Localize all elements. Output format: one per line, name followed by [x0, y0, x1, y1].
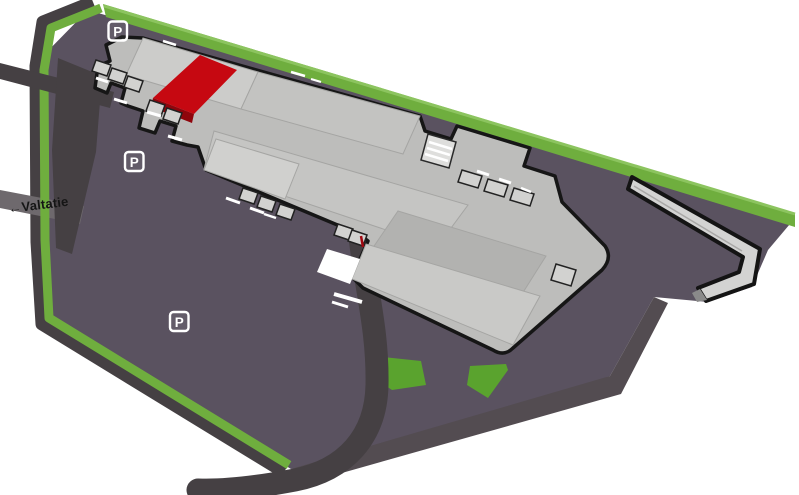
parking-sign-2: P — [125, 152, 144, 171]
parking-sign-3: P — [170, 312, 189, 331]
parking-sign-label: P — [175, 315, 184, 330]
site-map: P P P ←Valtatie — [0, 0, 799, 495]
parking-sign-1: P — [109, 22, 128, 41]
parking-sign-label: P — [113, 25, 122, 40]
parking-sign-label: P — [130, 155, 139, 170]
